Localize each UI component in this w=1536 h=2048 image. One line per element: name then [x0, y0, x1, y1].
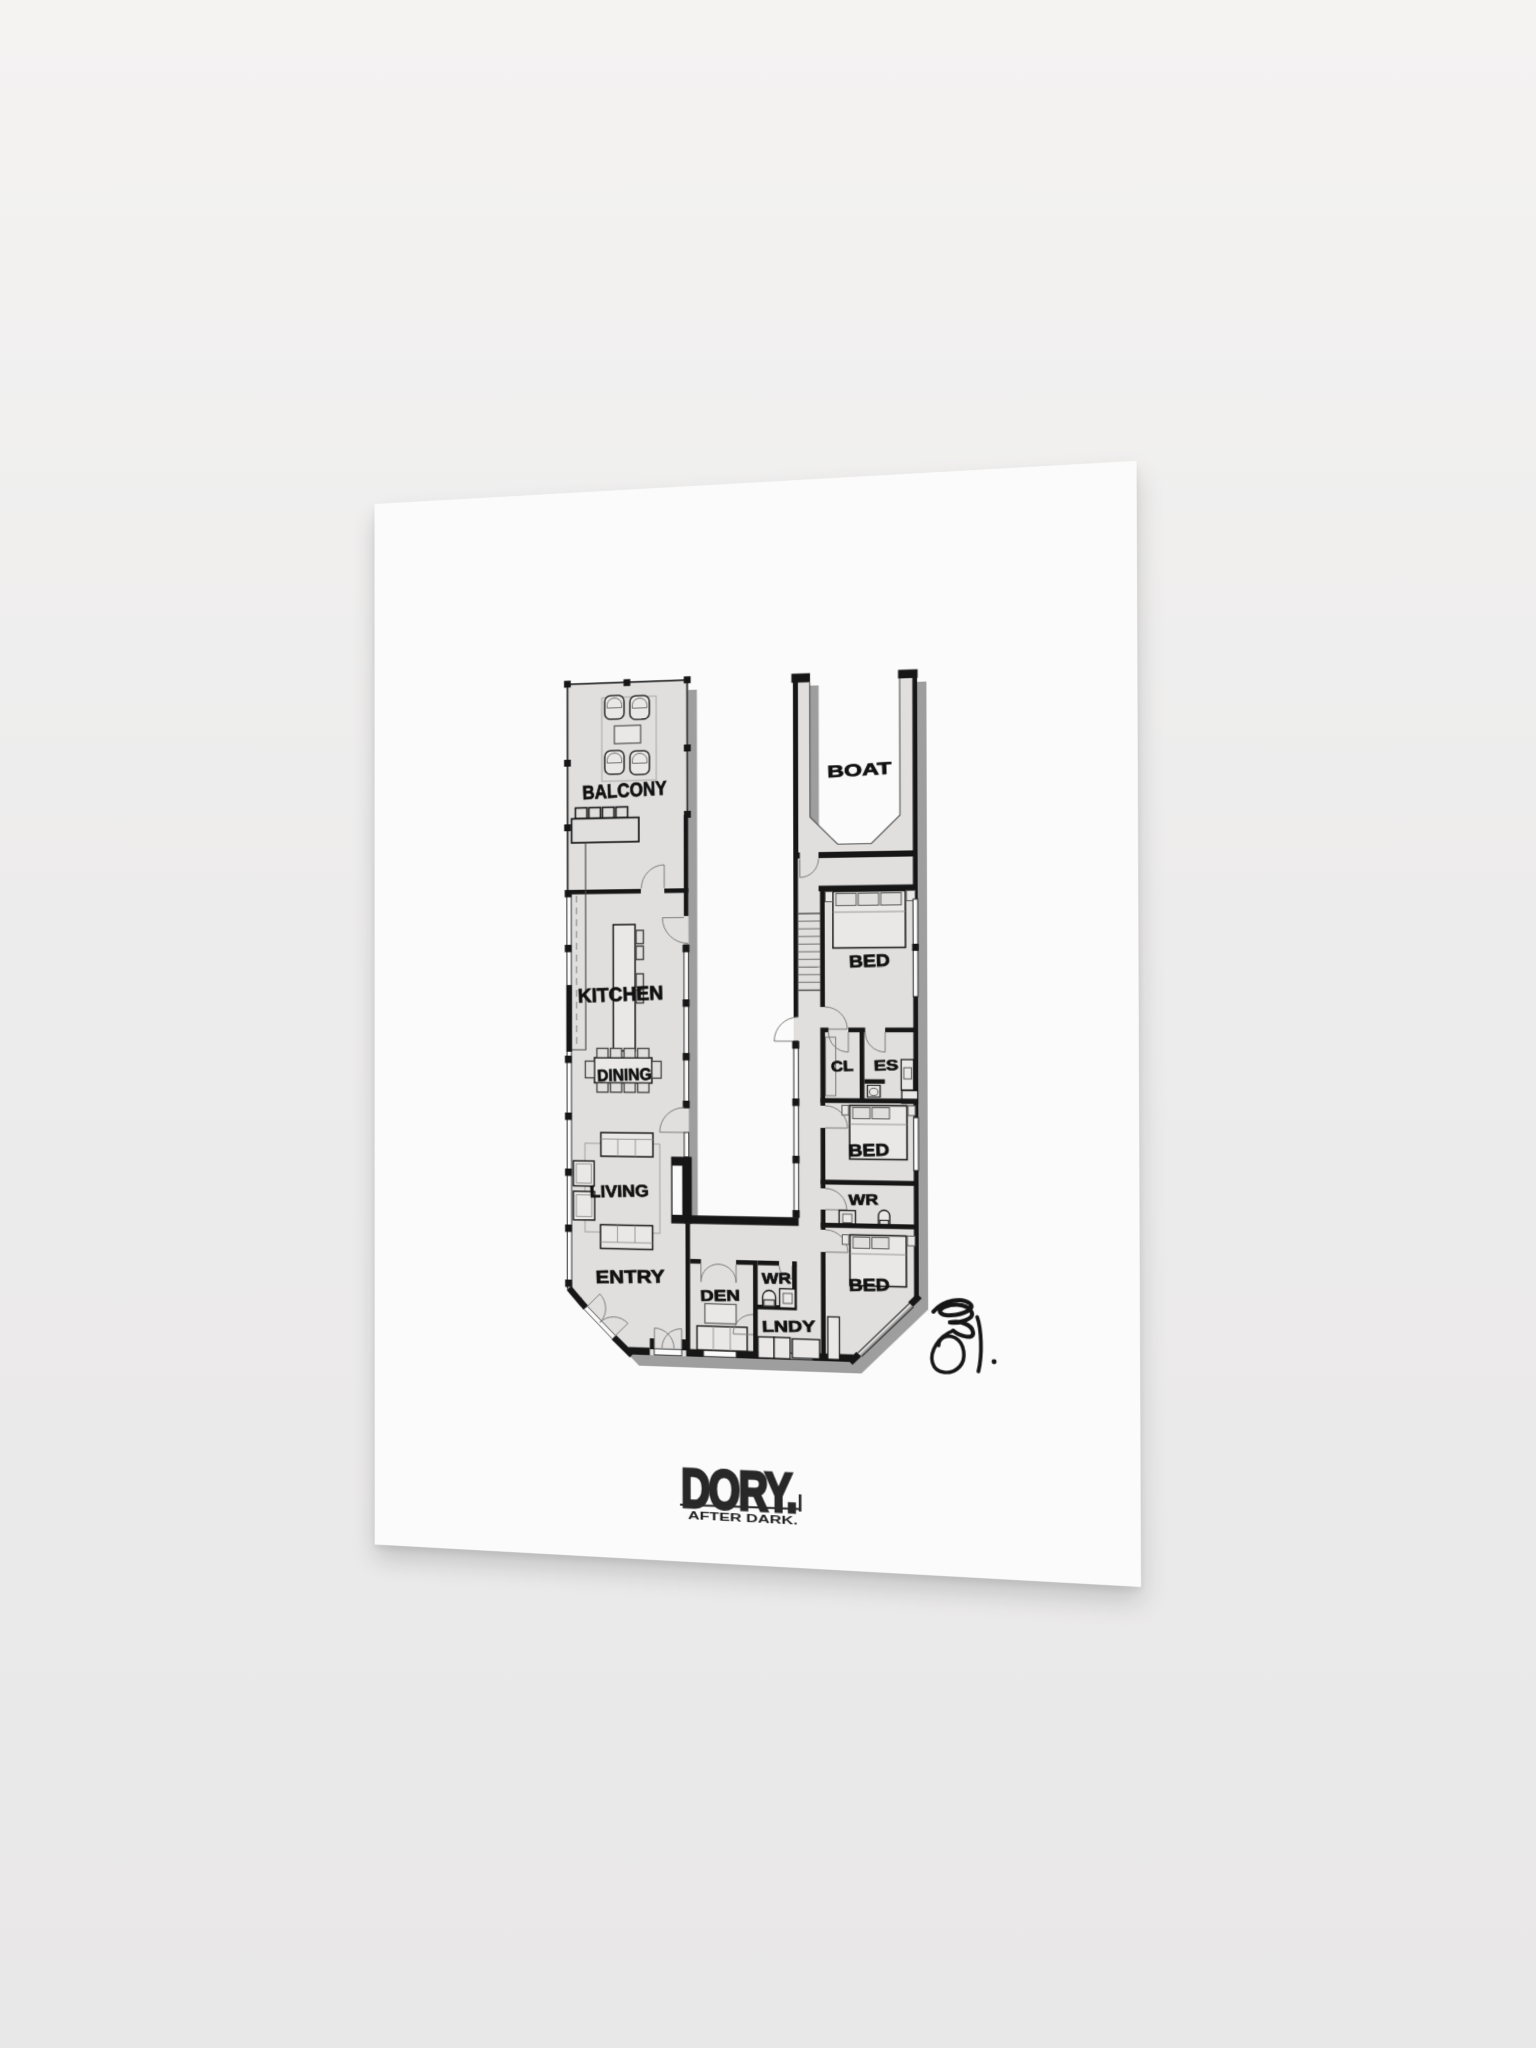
svg-text:BOAT: BOAT [827, 759, 893, 782]
svg-text:BED: BED [849, 952, 891, 972]
svg-text:WR: WR [848, 1191, 879, 1208]
svg-text:DEN: DEN [700, 1288, 740, 1306]
svg-text:ES: ES [873, 1057, 898, 1074]
svg-text:WR: WR [762, 1269, 792, 1287]
svg-text:BED: BED [848, 1276, 890, 1295]
svg-text:LIVING: LIVING [589, 1182, 649, 1201]
svg-text:DINING: DINING [597, 1066, 652, 1086]
svg-text:BED: BED [848, 1141, 890, 1161]
svg-text:KITCHEN: KITCHEN [577, 981, 663, 1007]
svg-text:ENTRY: ENTRY [595, 1266, 666, 1287]
svg-text:LNDY: LNDY [762, 1319, 817, 1337]
svg-text:CL: CL [831, 1058, 854, 1075]
